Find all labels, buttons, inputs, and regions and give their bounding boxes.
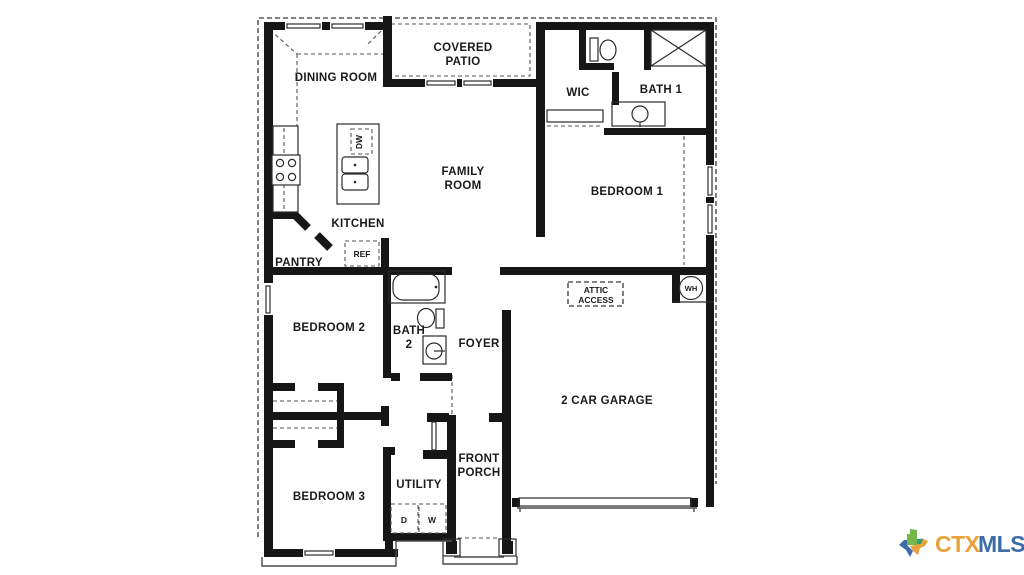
svg-text:ACCESS: ACCESS [578, 295, 614, 305]
toilet-icon [590, 38, 616, 61]
window [266, 286, 270, 313]
logo-text-ctx: CTX [935, 531, 981, 557]
bathtub-icon [389, 271, 445, 303]
dining-ceiling-dashed [270, 30, 297, 54]
window [332, 24, 363, 28]
room-label-dining: DINING ROOM [295, 72, 378, 84]
room-label-utility: UTILITY [396, 479, 442, 491]
label-wh: WH [685, 284, 698, 293]
shower-icon [651, 30, 706, 66]
porch-pillars [443, 539, 517, 564]
room-label-bath2: BATH [393, 325, 425, 337]
sink-icon [612, 102, 665, 127]
room-label-foyer: FOYER [458, 338, 500, 350]
double-sink-icon [342, 157, 368, 190]
svg-text:PATIO: PATIO [446, 56, 481, 68]
svg-text:ROOM: ROOM [445, 180, 482, 192]
floor-plan-drawing: DINING ROOM COVERED PATIO WIC BATH 1 FAM… [0, 0, 1024, 575]
floor-plan-page: DINING ROOM COVERED PATIO WIC BATH 1 FAM… [0, 0, 1024, 575]
label-attic-access: ATTIC [584, 285, 608, 295]
room-label-pantry: PANTRY [275, 257, 323, 269]
texas-state-icon [899, 529, 928, 557]
room-label-wic: WIC [566, 87, 589, 99]
closet-door [432, 422, 436, 450]
room-label-garage: 2 CAR GARAGE [561, 395, 653, 407]
label-washer: W [428, 515, 437, 525]
sink-icon [423, 336, 446, 364]
window [305, 551, 333, 555]
stove-icon [272, 155, 300, 185]
window [287, 24, 320, 28]
room-label-family: FAMILY [442, 166, 485, 178]
svg-text:2: 2 [406, 339, 413, 351]
window [464, 81, 491, 85]
label-ref: REF [354, 249, 371, 259]
window [427, 81, 455, 85]
ctxmls-logo: CTX MLS [899, 529, 1024, 557]
fixtures [262, 30, 706, 566]
room-label-bedroom2: BEDROOM 2 [293, 322, 365, 334]
room-label-kitchen: KITCHEN [331, 218, 384, 230]
logo-text-mls: MLS [978, 531, 1024, 557]
room-label-covered-patio: COVERED [434, 42, 493, 54]
label-dryer: D [401, 515, 407, 525]
garage-door [517, 498, 697, 512]
room-label-bedroom1: BEDROOM 1 [591, 186, 664, 198]
room-label-bath1: BATH 1 [640, 84, 683, 96]
label-dw: DW [354, 134, 364, 149]
window [708, 205, 712, 233]
window [708, 167, 712, 195]
room-label-bedroom3: BEDROOM 3 [293, 491, 365, 503]
wic-shelf [547, 110, 603, 122]
room-label-front-porch: FRONT [458, 453, 499, 465]
svg-text:PORCH: PORCH [457, 467, 500, 479]
